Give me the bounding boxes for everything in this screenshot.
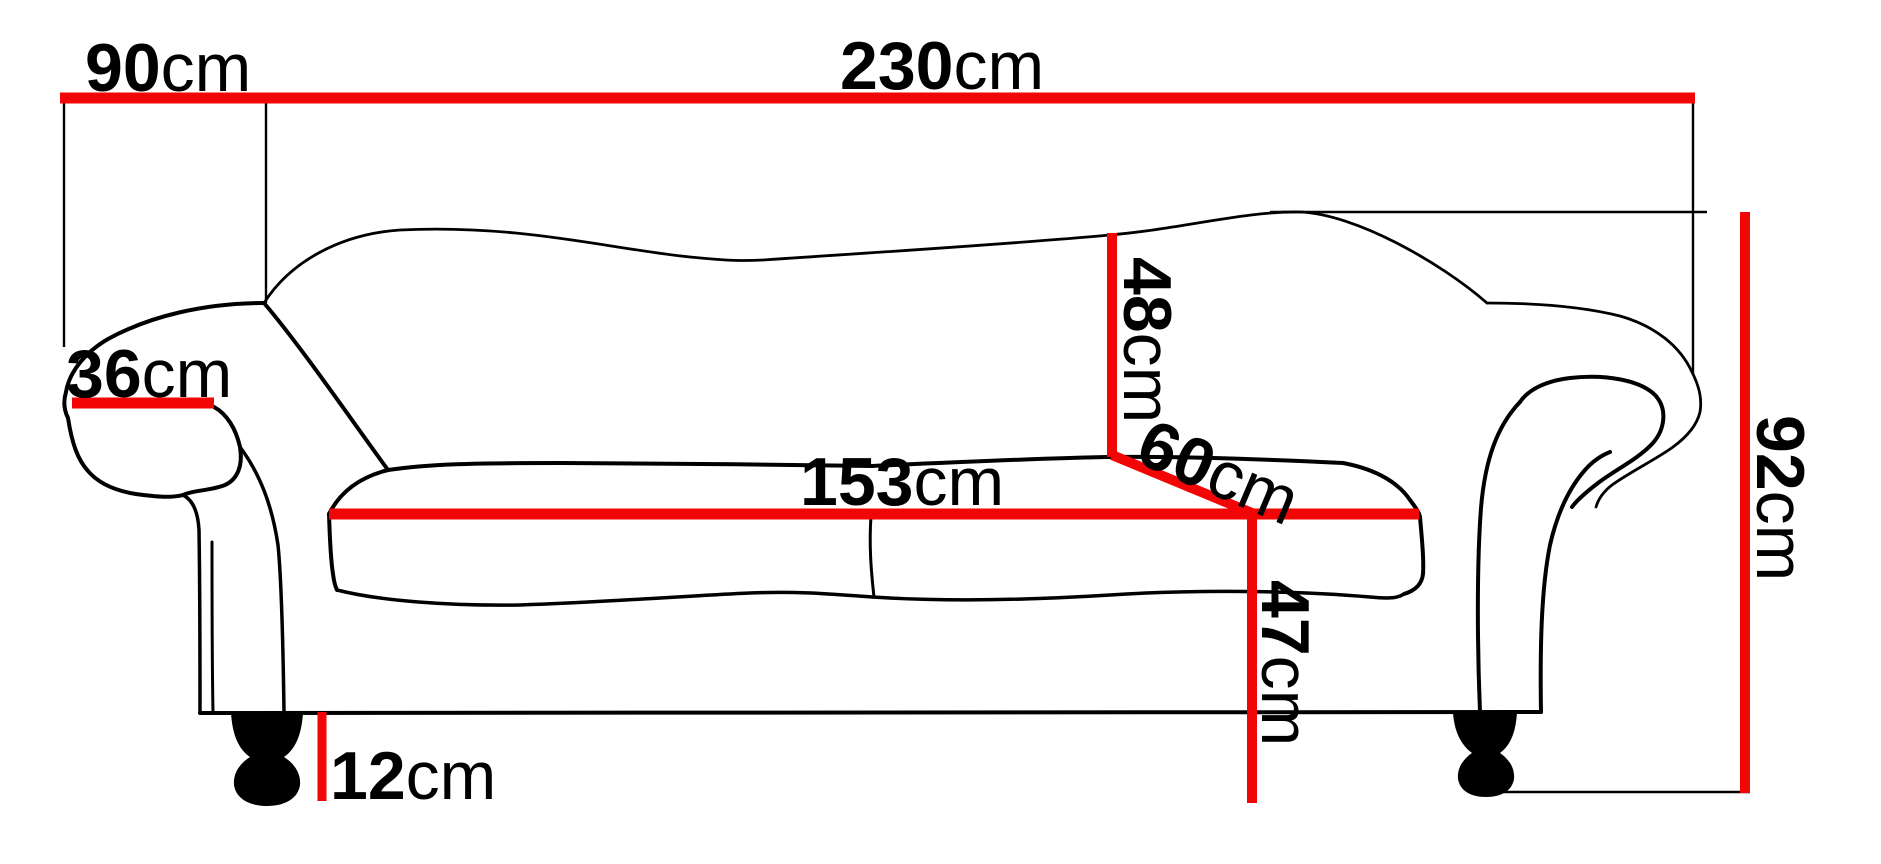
sofa-right-arm-pleat-1: [1478, 402, 1520, 712]
sofa-cushion-split: [870, 516, 874, 597]
sofa-cushion-right-edge: [1404, 517, 1423, 594]
dim-label-backrest-height: 48cm: [1109, 257, 1185, 423]
dim-unit-armrest: cm: [142, 336, 233, 412]
dim-value-seat-width: 153: [800, 444, 913, 520]
sofa-leg-right: [1453, 712, 1517, 797]
sofa-cushion-front-edge: [337, 590, 1404, 605]
dim-value-seat-height: 47: [1247, 580, 1323, 656]
dim-value-leg-height: 12: [330, 738, 406, 814]
sofa-left-arm-inner-edge: [240, 447, 284, 712]
dim-label-seat-depth: 60cm: [1127, 405, 1310, 540]
dim-unit-depth: cm: [161, 30, 252, 106]
sofa-cushion-left-edge: [329, 514, 337, 590]
sofa-left-arm-scroll: [183, 407, 241, 495]
dim-label-total-height: 92cm: [1742, 415, 1818, 581]
sofa-right-arm-scroll: [1520, 377, 1663, 507]
sofa-left-arm-pleat-1: [183, 495, 200, 712]
dim-value-total-width: 230: [840, 28, 953, 104]
dim-label-total-width: 230cm: [840, 28, 1044, 104]
dim-value-backrest-height: 48: [1109, 257, 1185, 333]
dimension-diagram: 90cm 230cm 36cm 48cm 60cm 153cm 47cm 12c…: [0, 0, 1881, 864]
sofa-left-arm-pleat-2: [212, 542, 213, 712]
sofa-right-arm-pleat-2: [1541, 452, 1610, 712]
sofa-dimension-drawing: 90cm 230cm 36cm 48cm 60cm 153cm 47cm 12c…: [0, 0, 1881, 864]
dim-unit-backrest-height: cm: [1109, 333, 1185, 424]
sofa-backrest-top: [264, 212, 1487, 303]
sofa-base-bottom: [200, 712, 1541, 715]
dim-unit-total-width: cm: [953, 28, 1044, 104]
dim-value-total-height: 92: [1742, 415, 1818, 491]
dim-label-seat-width: 153cm: [800, 444, 1004, 520]
sofa-backrest-left-edge: [264, 303, 388, 470]
dim-unit-total-height: cm: [1742, 491, 1818, 582]
dim-label-armrest: 36cm: [66, 336, 232, 412]
sofa-cushion-corner-left: [329, 470, 388, 514]
dim-label-depth: 90cm: [85, 30, 251, 106]
dim-unit-leg-height: cm: [406, 738, 497, 814]
dim-label-leg-height: 12cm: [330, 738, 496, 814]
sofa-leg-left: [231, 712, 303, 806]
dim-unit-seat-height: cm: [1247, 656, 1323, 747]
dim-value-armrest: 36: [66, 336, 142, 412]
dim-unit-seat-width: cm: [913, 444, 1004, 520]
dim-value-depth: 90: [85, 30, 161, 106]
dim-label-seat-height: 47cm: [1247, 580, 1323, 746]
